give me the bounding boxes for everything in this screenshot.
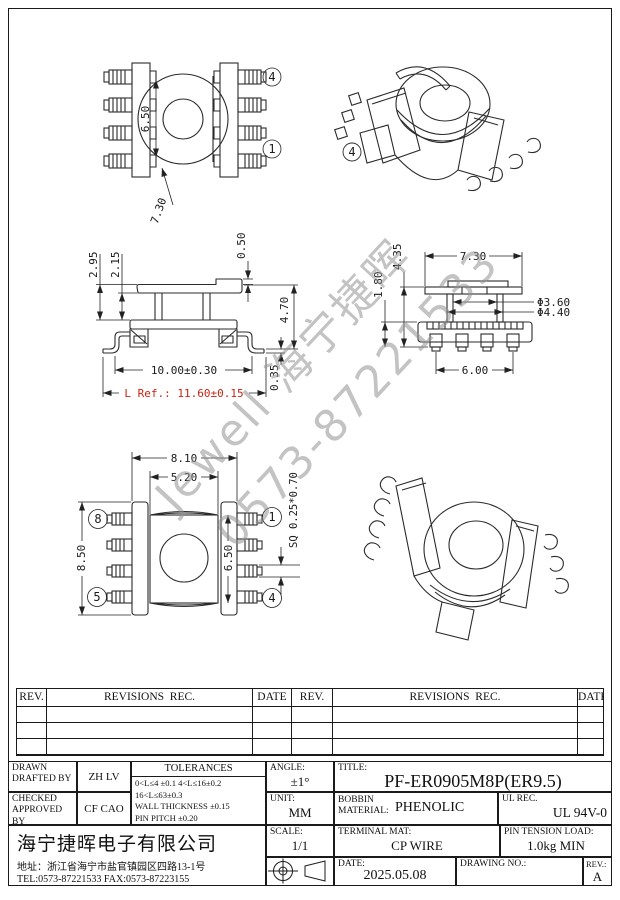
rev-cell-value: REV.: A (583, 857, 612, 886)
top-view-pins-left (104, 70, 132, 168)
checked-label: CHECKED (12, 794, 76, 805)
drawn-label: DRAWN (12, 763, 76, 774)
unit-value: MM (267, 805, 333, 821)
pin-tension-cell: PIN TENSION LOAD: 1.0kg MIN (500, 825, 612, 857)
dim-2-95: 2.95 (87, 252, 100, 279)
bottom-view-pins-right (237, 513, 262, 603)
checked-label-cell: CHECKED APPROVED BY (8, 792, 77, 825)
rev-header-revisions1: REVISIONS REC. (47, 689, 253, 707)
dim-7-30: 7.30 (460, 250, 487, 263)
side-view (418, 281, 532, 351)
part-title: PF-ER0905M8P(ER9.5) (335, 771, 611, 792)
dim-1-80: 1.80 (372, 272, 385, 299)
projection-symbol-cell (266, 857, 334, 886)
unit-cell: UNIT: MM (266, 792, 334, 825)
dim-pin-square: SQ 0.25*0.70 (288, 472, 300, 548)
scale-label: SCALE: (267, 826, 333, 838)
iso-pin-number-4: 4 (348, 145, 355, 159)
rev-cell (253, 739, 292, 755)
drafted-by-label: DRAFTED BY (12, 774, 76, 785)
pin-number-1: 1 (268, 142, 275, 156)
rev-cell (17, 739, 47, 755)
bobbin-material-cell: BOBBIN MATERIAL: PHENOLIC (334, 792, 498, 825)
pin-tension-value: 1.0kg MIN (501, 838, 611, 854)
dim-4-70: 4.70 (278, 297, 291, 324)
top-view-pins-right (238, 70, 266, 168)
drawn-value: ZH LV (77, 761, 131, 792)
scale-cell: SCALE: 1/1 (266, 825, 334, 857)
angle-cell: ANGLE: ±1° (266, 761, 334, 792)
rev-cell (333, 739, 578, 755)
dim-6-00: 6.00 (462, 364, 489, 377)
pin-number-5: 5 (93, 590, 100, 604)
rev-label: REV.: (584, 858, 611, 869)
terminal-material-value: CP WIRE (335, 838, 499, 854)
pin-number-1-bottom: 1 (268, 510, 275, 524)
bobbin-material-label: BOBBIN MATERIAL: (335, 794, 389, 818)
dim-0-35: 0.35 (268, 365, 281, 392)
company-name: 海宁捷晖电子有限公司 (9, 826, 265, 856)
tolerance-line-3: WALL THICKNESS ±0.15 (135, 801, 265, 813)
angle-value: ±1° (267, 774, 333, 790)
scale-value: 1/1 (267, 838, 333, 854)
rev-cell (292, 707, 333, 723)
company-cell: 海宁捷晖电子有限公司 地址：浙江省海宁市盐官镇园区四路13-1号 TEL:057… (8, 825, 266, 886)
rev-cell (47, 739, 253, 755)
title-block: DRAWN DRAFTED BY ZH LV CHECKED APPROVED … (8, 761, 612, 886)
rev-header-rev1: REV. (17, 689, 47, 707)
unit-label: UNIT: (267, 793, 333, 805)
drawing-no-cell: DRAWING NO.: (456, 857, 583, 886)
rev-cell (47, 723, 253, 739)
top-view (104, 63, 266, 177)
rev-cell (17, 707, 47, 723)
projection-symbol-icon (267, 858, 329, 884)
drawing-no-label: DRAWING NO.: (457, 858, 582, 870)
tolerance-line-4: PIN PITCH ±0.20 (135, 813, 265, 825)
pin-tension-label: PIN TENSION LOAD: (501, 826, 611, 838)
tolerance-line-1: 0<L≤4 ±0.1 4<L≤16±0.2 (135, 778, 265, 790)
ul-rec-cell: UL REC. UL 94V-0 (498, 792, 612, 825)
front-view (103, 279, 264, 353)
tolerances-title: TOLERANCES (132, 762, 265, 777)
rev-cell (292, 723, 333, 739)
rev-cell (578, 707, 603, 723)
terminal-material-cell: TERMINAL MAT: CP WIRE (334, 825, 500, 857)
dim-l-ref: L Ref.: 11.60±0.15 (124, 387, 243, 400)
dim-4-35: 4.35 (391, 244, 404, 271)
title-cell: TITLE: PF-ER0905M8P(ER9.5) (334, 761, 612, 792)
dim-8-10: 8.10 (171, 452, 198, 465)
rev-header-date2: DATE (578, 689, 603, 707)
rev-header-rev2: REV. (292, 689, 333, 707)
rev-header-revisions2: REVISIONS REC. (333, 689, 578, 707)
iso-view-bottom (364, 477, 568, 640)
dim-8-50: 8.50 (75, 545, 88, 572)
approved-by-label: APPROVED BY (12, 805, 76, 825)
ul-rec-label: UL REC. (499, 793, 611, 805)
rev-cell (17, 723, 47, 739)
bobbin-material-value: PHENOLIC (395, 800, 464, 816)
company-contact: TEL:0573-87221533 FAX:0573-87223155 (9, 873, 265, 885)
rev-cell (47, 707, 253, 723)
bottom-view (107, 502, 262, 615)
rev-cell (578, 723, 603, 739)
iso-view-top (335, 67, 541, 191)
dim-phi-4-40: Φ4.40 (537, 306, 570, 319)
rev-cell (292, 739, 333, 755)
company-address: 地址：浙江省海宁市盐官镇园区四路13-1号 (9, 856, 265, 873)
rev-cell (333, 723, 578, 739)
bottom-view-pins-left (107, 513, 132, 603)
rev-cell (578, 739, 603, 755)
dim-6-50-window: 6.50 (222, 545, 235, 572)
rev-header-date1: DATE (253, 689, 292, 707)
dim-2-15: 2.15 (109, 252, 122, 279)
dim-bore: 6.50 (139, 106, 152, 133)
drawing-views: 6.50 7.30 4 1 4 (0, 0, 620, 690)
checked-value: CF CAO (77, 792, 131, 825)
rev-cell (333, 707, 578, 723)
dim-5-20: 5.20 (171, 471, 198, 484)
rev-value: A (584, 869, 611, 885)
dim-0-50: 0.50 (235, 233, 248, 260)
tolerances-cell: TOLERANCES 0<L≤4 ±0.1 4<L≤16±0.2 16<L≤63… (131, 761, 266, 825)
angle-label: ANGLE: (267, 762, 333, 774)
ul-rec-value: UL 94V-0 (499, 805, 611, 821)
pin-number-4: 4 (268, 70, 275, 84)
pin-number-8: 8 (94, 512, 101, 526)
dim-outer: 7.30 (148, 196, 169, 225)
top-view-dimensions (156, 68, 281, 205)
engineering-drawing-sheet: 6.50 7.30 4 1 4 (0, 0, 620, 900)
terminal-material-label: TERMINAL MAT: (335, 826, 499, 838)
revision-table: REV. REVISIONS REC. DATE REV. REVISIONS … (16, 688, 604, 756)
rev-cell (253, 723, 292, 739)
tolerance-line-2: 16<L≤63±0.3 (135, 790, 265, 802)
date-value: 2025.05.08 (335, 868, 455, 884)
date-cell: DATE: 2025.05.08 (334, 857, 456, 886)
pin-number-4-bottom: 4 (268, 591, 275, 605)
dim-width: 10.00±0.30 (151, 364, 217, 377)
rev-cell (253, 707, 292, 723)
drawn-label-cell: DRAWN DRAFTED BY (8, 761, 77, 792)
